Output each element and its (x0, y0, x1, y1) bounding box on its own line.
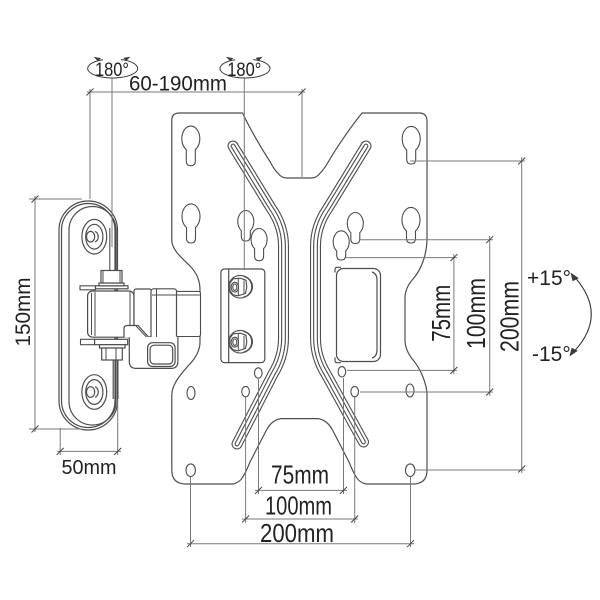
svg-text:60-190mm: 60-190mm (129, 73, 227, 96)
svg-text:50mm: 50mm (62, 457, 117, 479)
svg-text:75mm: 75mm (426, 285, 456, 342)
svg-text:200mm: 200mm (495, 281, 525, 352)
svg-text:75mm: 75mm (271, 460, 329, 490)
svg-text:+15°: +15° (527, 267, 571, 290)
svg-text:180°: 180° (95, 60, 129, 81)
svg-text:150mm: 150mm (12, 278, 35, 347)
svg-text:200mm: 200mm (260, 518, 334, 548)
svg-text:100mm: 100mm (461, 278, 491, 349)
svg-text:-15°: -15° (532, 343, 571, 366)
svg-text:180°: 180° (227, 60, 261, 81)
svg-text:100mm: 100mm (265, 491, 332, 521)
